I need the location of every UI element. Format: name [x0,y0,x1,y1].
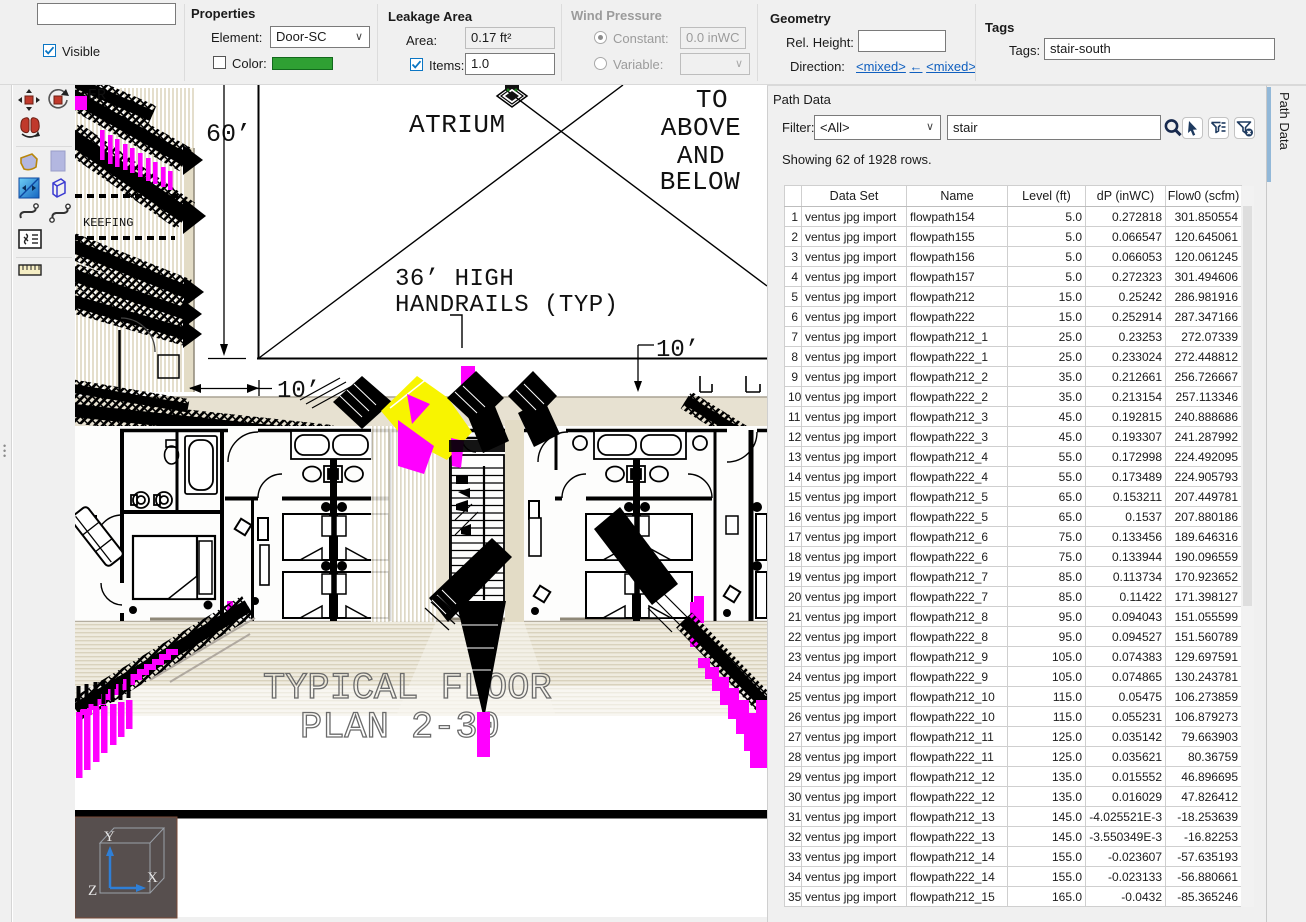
svg-text:TYPICAL FLOOR: TYPICAL FLOOR [263,668,552,710]
svg-text:ATRIUM: ATRIUM [409,110,506,140]
svg-text:60’: 60’ [206,120,251,149]
svg-text:ABOVE: ABOVE [661,113,742,143]
svg-text:Y: Y [104,829,115,845]
svg-text:10’: 10’ [277,378,320,405]
svg-text:PLAN 2-30: PLAN 2-30 [300,707,500,749]
svg-text:TO: TO [696,85,728,115]
svg-text:KEEFING: KEEFING [83,216,133,230]
svg-text:Z: Z [88,883,97,899]
svg-text:X: X [147,870,158,886]
svg-text:ER: ER [88,87,106,104]
svg-text:10’: 10’ [656,337,699,364]
svg-text:HANDRAILS (TYP): HANDRAILS (TYP) [395,292,619,319]
svg-text:BELOW: BELOW [660,167,741,197]
svg-text:36’ HIGH: 36’ HIGH [395,266,514,293]
